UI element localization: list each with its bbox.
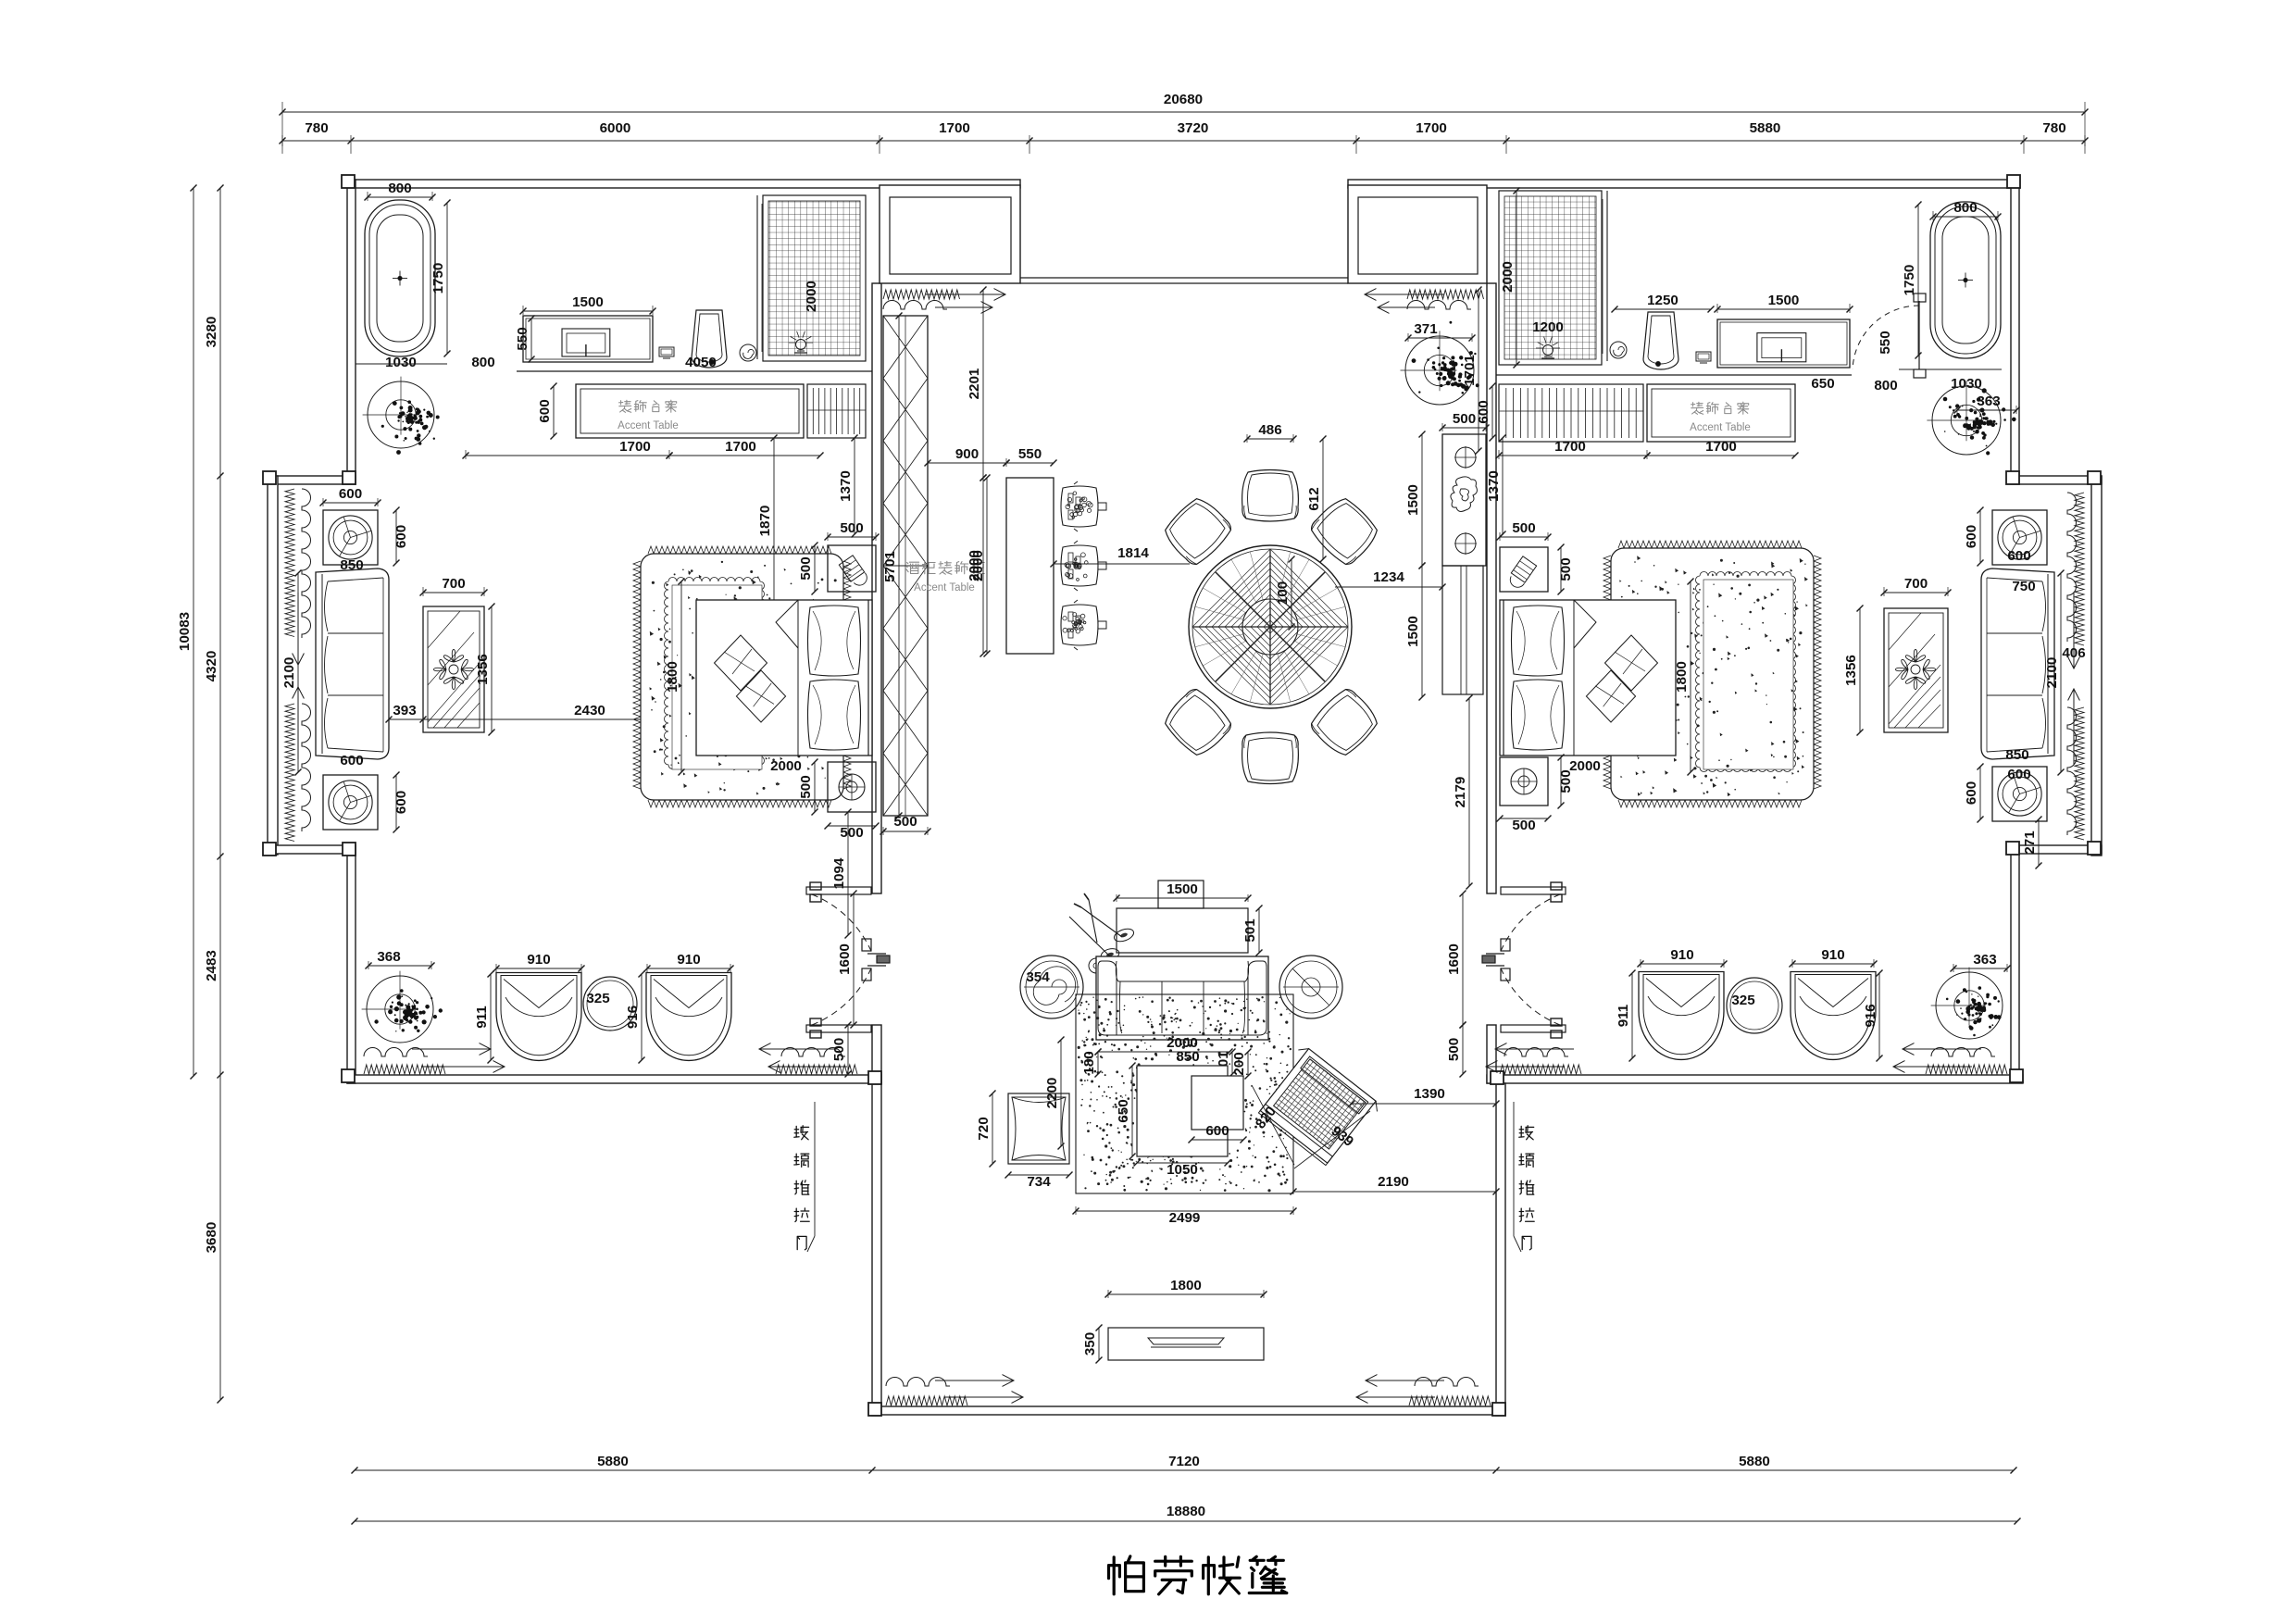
svg-text:2483: 2483 (204, 950, 219, 981)
svg-text:363: 363 (1973, 952, 1996, 968)
svg-text:1701: 1701 (1462, 355, 1478, 386)
svg-text:100: 100 (1275, 581, 1291, 605)
svg-text:550: 550 (1878, 331, 1893, 354)
svg-text:500: 500 (893, 814, 917, 830)
svg-text:500: 500 (1558, 557, 1574, 581)
svg-text:2179: 2179 (1453, 777, 1468, 808)
svg-text:650: 650 (1116, 1099, 1131, 1122)
svg-text:780: 780 (305, 120, 328, 136)
svg-text:500: 500 (1558, 769, 1574, 793)
svg-text:2000: 2000 (804, 281, 819, 312)
svg-text:500: 500 (798, 775, 814, 798)
svg-text:500: 500 (840, 520, 863, 536)
svg-text:1800: 1800 (665, 661, 680, 693)
svg-text:500: 500 (798, 556, 814, 580)
svg-text:1356: 1356 (1843, 655, 1859, 686)
svg-text:2190: 2190 (1378, 1174, 1409, 1190)
svg-text:500: 500 (840, 825, 863, 841)
svg-text:2000: 2000 (770, 758, 802, 774)
svg-text:350: 350 (1082, 1332, 1098, 1355)
svg-text:4320: 4320 (204, 651, 219, 682)
svg-text:1700: 1700 (619, 439, 651, 455)
svg-text:1750: 1750 (1902, 265, 1917, 296)
svg-text:2000: 2000 (970, 550, 986, 581)
svg-text:1814: 1814 (1117, 545, 1149, 561)
svg-text:2100: 2100 (2044, 657, 2060, 689)
svg-text:371: 371 (1414, 321, 1438, 337)
svg-text:734: 734 (1027, 1174, 1051, 1190)
svg-text:20680: 20680 (1164, 92, 1203, 107)
svg-text:910: 910 (1821, 947, 1844, 963)
svg-text:325: 325 (586, 991, 610, 1006)
svg-text:600: 600 (537, 399, 553, 422)
svg-text:5880: 5880 (597, 1454, 629, 1469)
svg-text:10083: 10083 (177, 612, 193, 651)
svg-text:18880: 18880 (1167, 1504, 1205, 1519)
svg-text:750: 750 (2012, 579, 2035, 594)
svg-text:800: 800 (1953, 200, 1977, 216)
svg-text:910: 910 (1670, 947, 1693, 963)
svg-text:Accent Table: Accent Table (618, 420, 679, 431)
svg-text:1200: 1200 (1532, 319, 1564, 335)
svg-text:3720: 3720 (1178, 120, 1209, 136)
svg-text:1234: 1234 (1373, 569, 1404, 585)
svg-text:1050: 1050 (1167, 1162, 1198, 1178)
svg-text:1500: 1500 (1167, 881, 1198, 897)
svg-text:1800: 1800 (1674, 661, 1690, 693)
svg-text:600: 600 (2007, 548, 2030, 564)
svg-text:910: 910 (677, 952, 700, 968)
svg-text:2100: 2100 (281, 657, 297, 689)
svg-text:1030: 1030 (385, 355, 417, 370)
svg-text:1250: 1250 (1647, 293, 1678, 308)
svg-text:6000: 6000 (600, 120, 631, 136)
svg-text:2201: 2201 (967, 368, 982, 399)
svg-text:2430: 2430 (574, 703, 605, 718)
svg-text:1500: 1500 (572, 294, 604, 310)
svg-text:600: 600 (1964, 781, 1979, 805)
svg-text:4050: 4050 (685, 355, 717, 370)
svg-text:1500: 1500 (1768, 293, 1800, 308)
svg-text:850: 850 (1176, 1049, 1199, 1065)
svg-text:1700: 1700 (939, 120, 970, 136)
svg-text:2499: 2499 (1169, 1210, 1201, 1226)
svg-text:Accent Table: Accent Table (1690, 422, 1751, 433)
svg-text:911: 911 (474, 1006, 490, 1029)
svg-text:200: 200 (1231, 1052, 1247, 1075)
svg-text:600: 600 (2007, 767, 2030, 782)
svg-text:406: 406 (2062, 645, 2085, 661)
svg-text:271: 271 (2022, 831, 2038, 855)
svg-text:1500: 1500 (1405, 616, 1421, 647)
svg-text:910: 910 (527, 952, 550, 968)
svg-text:612: 612 (1306, 487, 1322, 510)
svg-text:500: 500 (1446, 1038, 1462, 1061)
svg-text:911: 911 (1616, 1004, 1631, 1027)
svg-text:600: 600 (1476, 400, 1491, 423)
svg-text:354: 354 (1026, 969, 1050, 985)
svg-text:500: 500 (1453, 411, 1476, 427)
svg-text:1370: 1370 (1486, 470, 1502, 502)
svg-text:650: 650 (1811, 376, 1834, 392)
svg-text:1750: 1750 (430, 263, 446, 294)
svg-text:1600: 1600 (1446, 943, 1462, 975)
svg-text:600: 600 (1205, 1123, 1229, 1139)
svg-text:2000: 2000 (1569, 758, 1601, 774)
svg-text:325: 325 (1731, 993, 1755, 1008)
svg-text:780: 780 (2042, 120, 2065, 136)
svg-text:486: 486 (1258, 422, 1281, 438)
svg-text:600: 600 (1964, 525, 1979, 548)
svg-text:1700: 1700 (1554, 439, 1586, 455)
svg-text:1870: 1870 (757, 506, 773, 537)
svg-text:1390: 1390 (1414, 1086, 1445, 1102)
svg-text:600: 600 (340, 753, 363, 768)
svg-text:1700: 1700 (1416, 120, 1447, 136)
svg-text:850: 850 (2005, 747, 2028, 763)
svg-text:Accent Table: Accent Table (914, 582, 975, 593)
svg-text:501: 501 (1242, 918, 1258, 943)
svg-text:5701: 5701 (882, 551, 898, 582)
svg-text:800: 800 (388, 181, 411, 196)
svg-text:368: 368 (377, 949, 400, 965)
svg-text:1800: 1800 (1170, 1278, 1202, 1293)
svg-text:1356: 1356 (475, 654, 491, 685)
svg-text:1094: 1094 (831, 857, 847, 889)
svg-text:1600: 1600 (837, 943, 853, 975)
svg-text:800: 800 (471, 355, 494, 370)
svg-text:500: 500 (1512, 520, 1535, 536)
svg-text:550: 550 (515, 327, 530, 350)
svg-text:800: 800 (1874, 378, 1897, 394)
svg-text:180: 180 (1081, 1051, 1097, 1074)
svg-text:1370: 1370 (838, 470, 854, 502)
svg-text:2000: 2000 (1500, 261, 1516, 293)
svg-text:363: 363 (1977, 394, 2000, 409)
svg-text:1700: 1700 (1705, 439, 1737, 455)
svg-text:916: 916 (625, 1006, 641, 1029)
svg-text:7120: 7120 (1168, 1454, 1200, 1469)
svg-text:393: 393 (393, 703, 416, 718)
svg-text:600: 600 (393, 525, 409, 548)
svg-text:600: 600 (339, 486, 362, 502)
svg-text:5880: 5880 (1750, 120, 1781, 136)
svg-text:5880: 5880 (1739, 1454, 1770, 1469)
svg-text:1500: 1500 (1405, 484, 1421, 516)
svg-text:3680: 3680 (204, 1222, 219, 1254)
svg-text:1700: 1700 (725, 439, 756, 455)
svg-text:916: 916 (1863, 1004, 1878, 1027)
svg-text:900: 900 (955, 446, 979, 462)
svg-text:3280: 3280 (204, 317, 219, 348)
svg-text:500: 500 (831, 1038, 847, 1061)
svg-text:550: 550 (1018, 446, 1042, 462)
svg-text:500: 500 (1512, 818, 1535, 833)
svg-text:720: 720 (976, 1117, 992, 1140)
svg-text:600: 600 (393, 791, 409, 814)
svg-text:700: 700 (442, 576, 465, 592)
svg-text:700: 700 (1904, 576, 1928, 592)
